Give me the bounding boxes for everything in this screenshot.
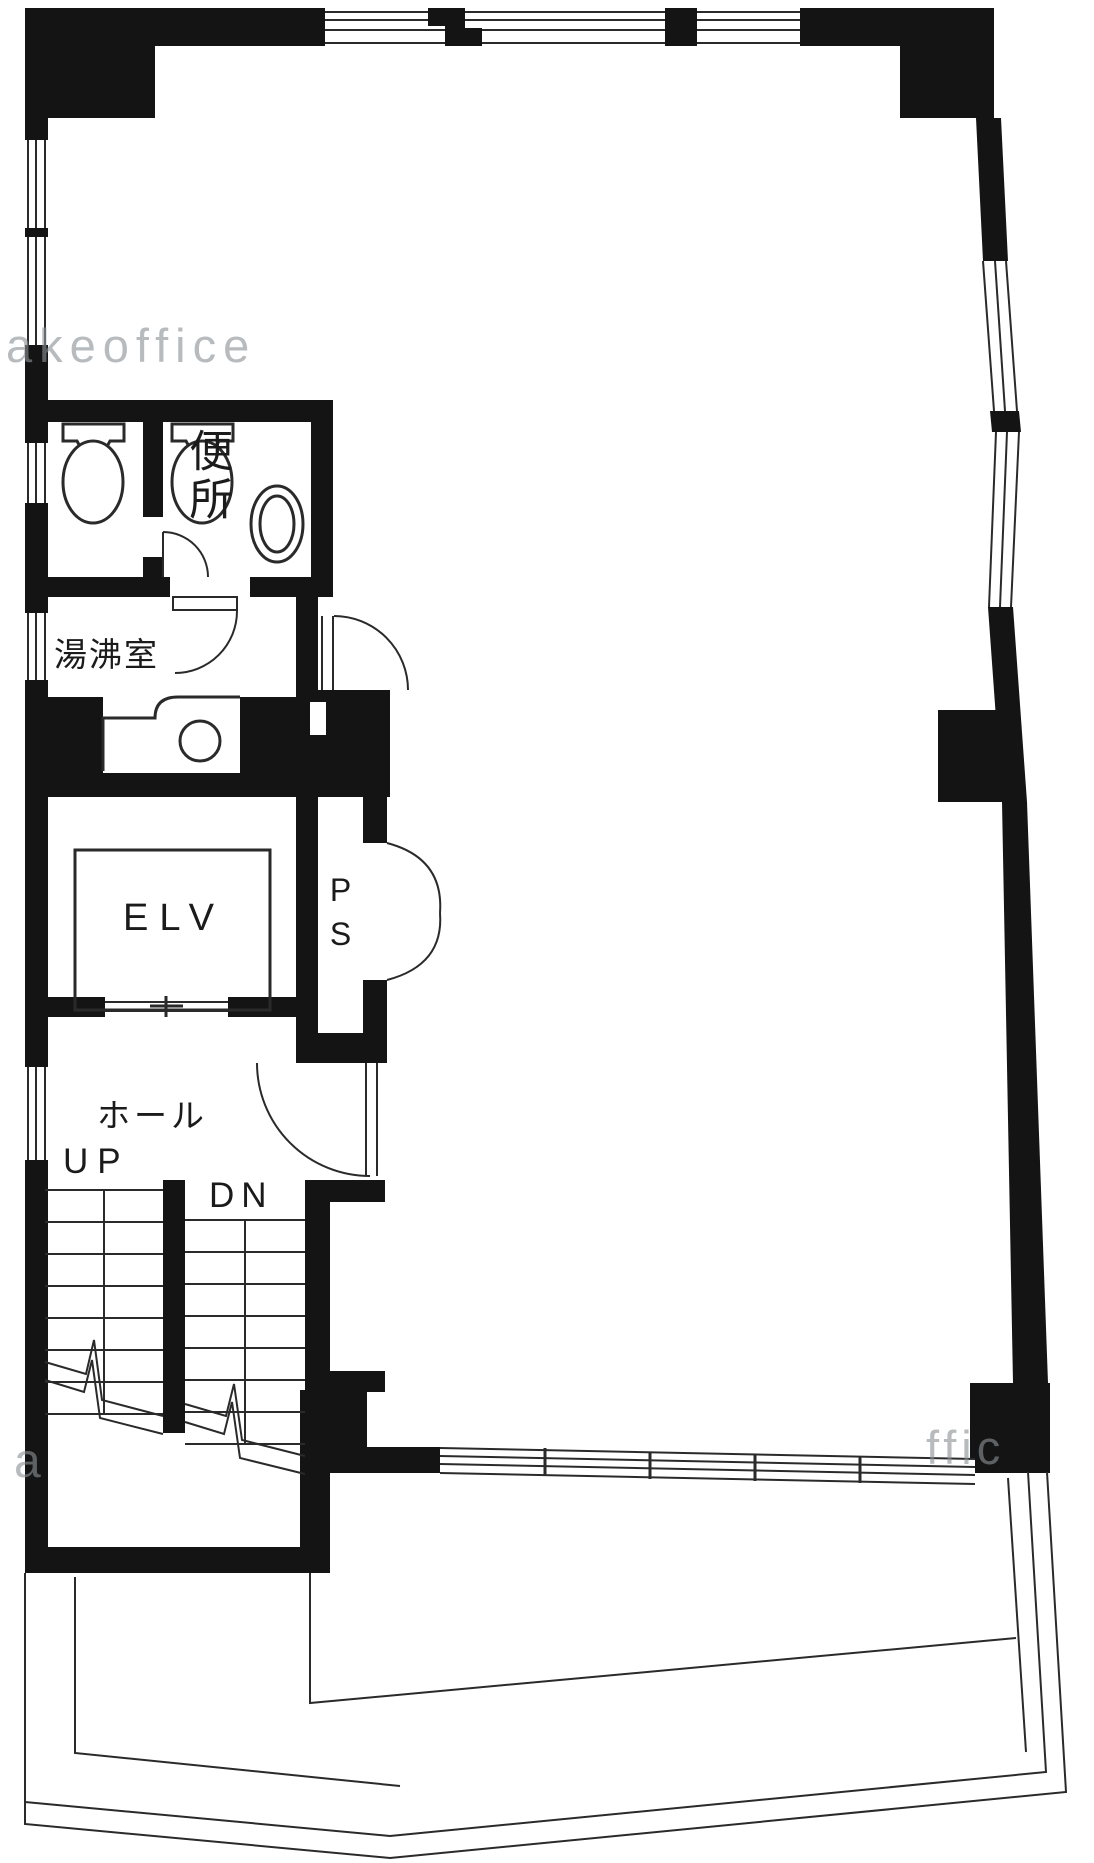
room-label-elevator: ELV [123, 899, 225, 939]
top-window-band [325, 8, 800, 46]
room-label-toilet: 便所 [183, 428, 229, 524]
balcony-outlines [25, 1472, 1066, 1858]
stair-treads-up [45, 1190, 163, 1414]
door-swing-arc [257, 1063, 377, 1176]
wash-basin-icon [251, 486, 303, 562]
door-swing-arc [322, 616, 408, 690]
door-swing-arc [163, 532, 208, 577]
stair-label-down: DN [209, 1178, 274, 1215]
stair-treads-down [185, 1220, 305, 1444]
bottom-window-band [440, 1448, 975, 1484]
floor-plan: 便所 湯沸室 ELV PS ホール UP DN akeoffice ffic a [0, 0, 1094, 1863]
toilet-bowl-icon [63, 424, 124, 523]
room-label-kitchenette: 湯沸室 [54, 638, 159, 673]
kitchen-sink-icon [103, 697, 240, 771]
interior-walls [25, 400, 440, 1573]
room-label-hall: ホール [97, 1099, 208, 1134]
double-door-arcs [387, 843, 440, 980]
door-swing-arc [173, 597, 237, 673]
stair-label-up: UP [63, 1144, 130, 1181]
right-wall-windows [981, 261, 1021, 607]
room-label-pipe-shaft: PS [323, 872, 357, 960]
